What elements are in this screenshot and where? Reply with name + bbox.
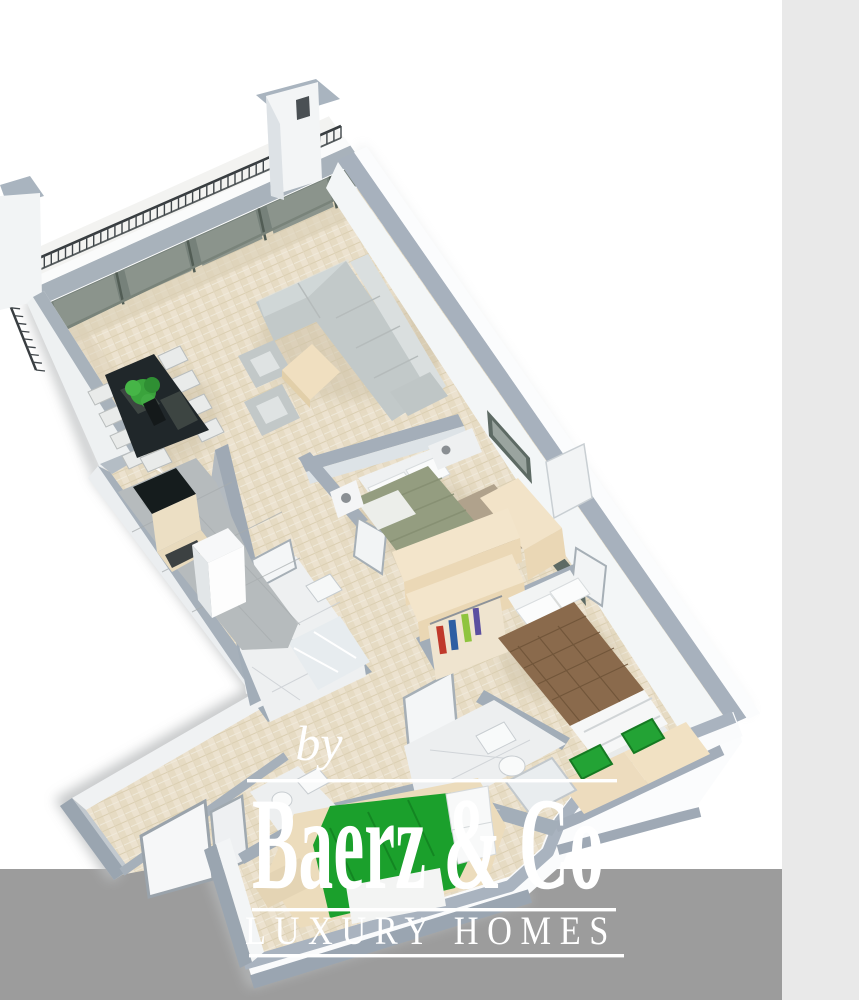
svg-text:by: by <box>295 715 343 771</box>
svg-text:Baerz & Co: Baerz & Co <box>252 770 604 917</box>
svg-text:LUXURY HOMES: LUXURY HOMES <box>245 908 617 953</box>
